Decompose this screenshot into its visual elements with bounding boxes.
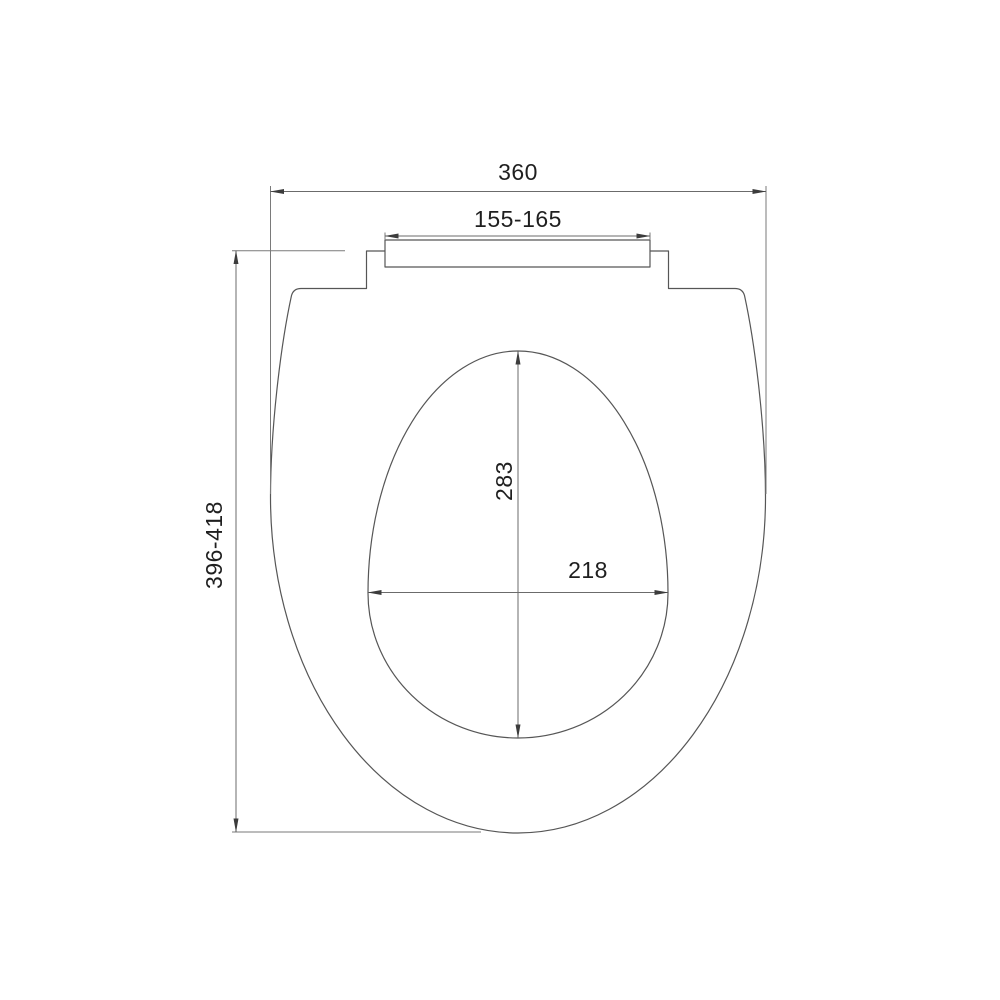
overall-width-dimension-label: 360 [498,159,538,185]
cutout-length-dimension-label: 283 [491,461,517,501]
cutout-width-dimension-label: 218 [568,557,608,583]
overall-length-dimension-label: 396-418 [201,501,227,589]
hinge-span-dimension-label: 155-165 [474,206,562,232]
hinge-bar [385,240,650,267]
toilet-seat-technical-drawing: 360 155-165 396-418 283 218 [0,0,1000,1000]
drawing-canvas: 360 155-165 396-418 283 218 [0,0,1000,1000]
